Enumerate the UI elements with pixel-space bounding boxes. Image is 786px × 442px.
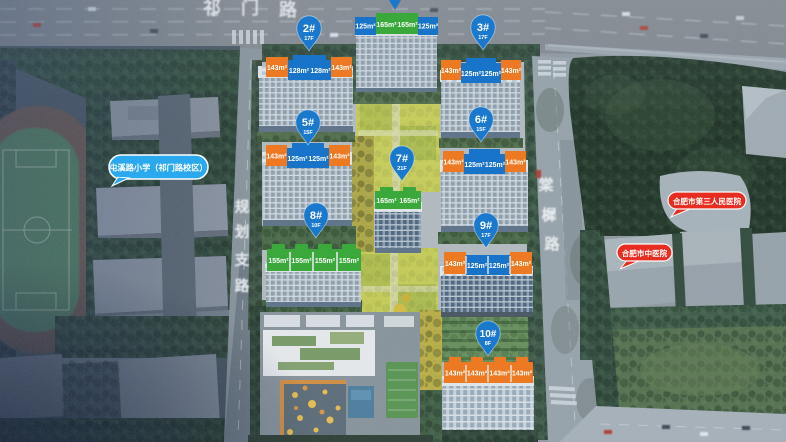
svg-text:143m²: 143m²	[512, 371, 533, 378]
svg-text:支: 支	[235, 251, 250, 269]
svg-text:15F: 15F	[476, 127, 486, 133]
svg-text:樨: 樨	[541, 206, 556, 224]
svg-text:155m²: 155m²	[268, 258, 289, 265]
svg-text:门: 门	[241, 0, 259, 18]
svg-text:21F: 21F	[397, 166, 407, 172]
svg-text:143m²: 143m²	[445, 261, 466, 268]
svg-text:8#: 8#	[310, 210, 322, 222]
svg-text:10F: 10F	[311, 223, 321, 229]
svg-text:143m²: 143m²	[266, 154, 287, 161]
svg-text:9#: 9#	[480, 220, 492, 232]
svg-text:125m²: 125m²	[355, 24, 376, 31]
svg-text:合肥市第三人民医院: 合肥市第三人民医院	[673, 196, 742, 206]
svg-text:125m²: 125m²	[308, 156, 329, 163]
svg-text:划: 划	[235, 223, 250, 241]
svg-text:125m²: 125m²	[489, 263, 510, 270]
svg-text:10#: 10#	[480, 329, 497, 340]
svg-text:5#: 5#	[302, 117, 314, 129]
svg-text:17F: 17F	[478, 35, 488, 41]
svg-text:143m²: 143m²	[467, 371, 488, 378]
svg-text:128m²: 128m²	[289, 68, 310, 75]
svg-text:143m²: 143m²	[511, 261, 532, 268]
svg-text:2#: 2#	[303, 23, 315, 35]
svg-text:125m²: 125m²	[418, 24, 439, 31]
svg-text:17F: 17F	[304, 36, 314, 42]
svg-text:7#: 7#	[396, 153, 408, 165]
svg-text:143m²: 143m²	[441, 68, 462, 75]
svg-text:143m²: 143m²	[445, 371, 466, 378]
svg-text:165m²: 165m²	[376, 22, 397, 29]
svg-text:屯溪路小学（祁门路校区）: 屯溪路小学（祁门路校区）	[109, 163, 207, 173]
svg-text:合肥市中医院: 合肥市中医院	[622, 248, 668, 258]
svg-text:155m²: 155m²	[291, 258, 312, 265]
svg-text:143m²: 143m²	[443, 160, 464, 167]
svg-text:155m²: 155m²	[315, 258, 336, 265]
svg-text:17F: 17F	[481, 233, 491, 239]
svg-text:165m²: 165m²	[399, 198, 420, 205]
svg-text:125m²: 125m²	[485, 162, 506, 169]
svg-text:125m²: 125m²	[464, 162, 485, 169]
svg-text:128m²: 128m²	[310, 68, 331, 75]
svg-text:143m²: 143m²	[329, 154, 350, 161]
svg-text:155m²: 155m²	[339, 258, 360, 265]
svg-text:143m²: 143m²	[331, 65, 352, 72]
svg-text:165m²: 165m²	[376, 198, 397, 205]
svg-text:棠: 棠	[537, 176, 554, 194]
svg-text:祁: 祁	[203, 0, 221, 18]
svg-text:路: 路	[235, 277, 250, 295]
svg-text:8F: 8F	[485, 341, 492, 347]
svg-text:143m²: 143m²	[489, 371, 510, 378]
svg-text:125m²: 125m²	[287, 156, 308, 163]
svg-text:125m²: 125m²	[481, 71, 502, 78]
svg-text:6#: 6#	[475, 114, 487, 126]
svg-text:125m²: 125m²	[467, 263, 488, 270]
svg-text:125m²: 125m²	[461, 71, 482, 78]
svg-text:3#: 3#	[477, 22, 489, 34]
svg-text:15F: 15F	[303, 130, 313, 136]
svg-text:143m²: 143m²	[267, 65, 288, 72]
svg-text:165m²: 165m²	[397, 22, 418, 29]
svg-text:路: 路	[279, 0, 298, 20]
svg-text:143m²: 143m²	[505, 160, 526, 167]
svg-text:规: 规	[235, 199, 250, 216]
svg-text:路: 路	[544, 235, 560, 253]
svg-text:143m²: 143m²	[501, 68, 522, 75]
